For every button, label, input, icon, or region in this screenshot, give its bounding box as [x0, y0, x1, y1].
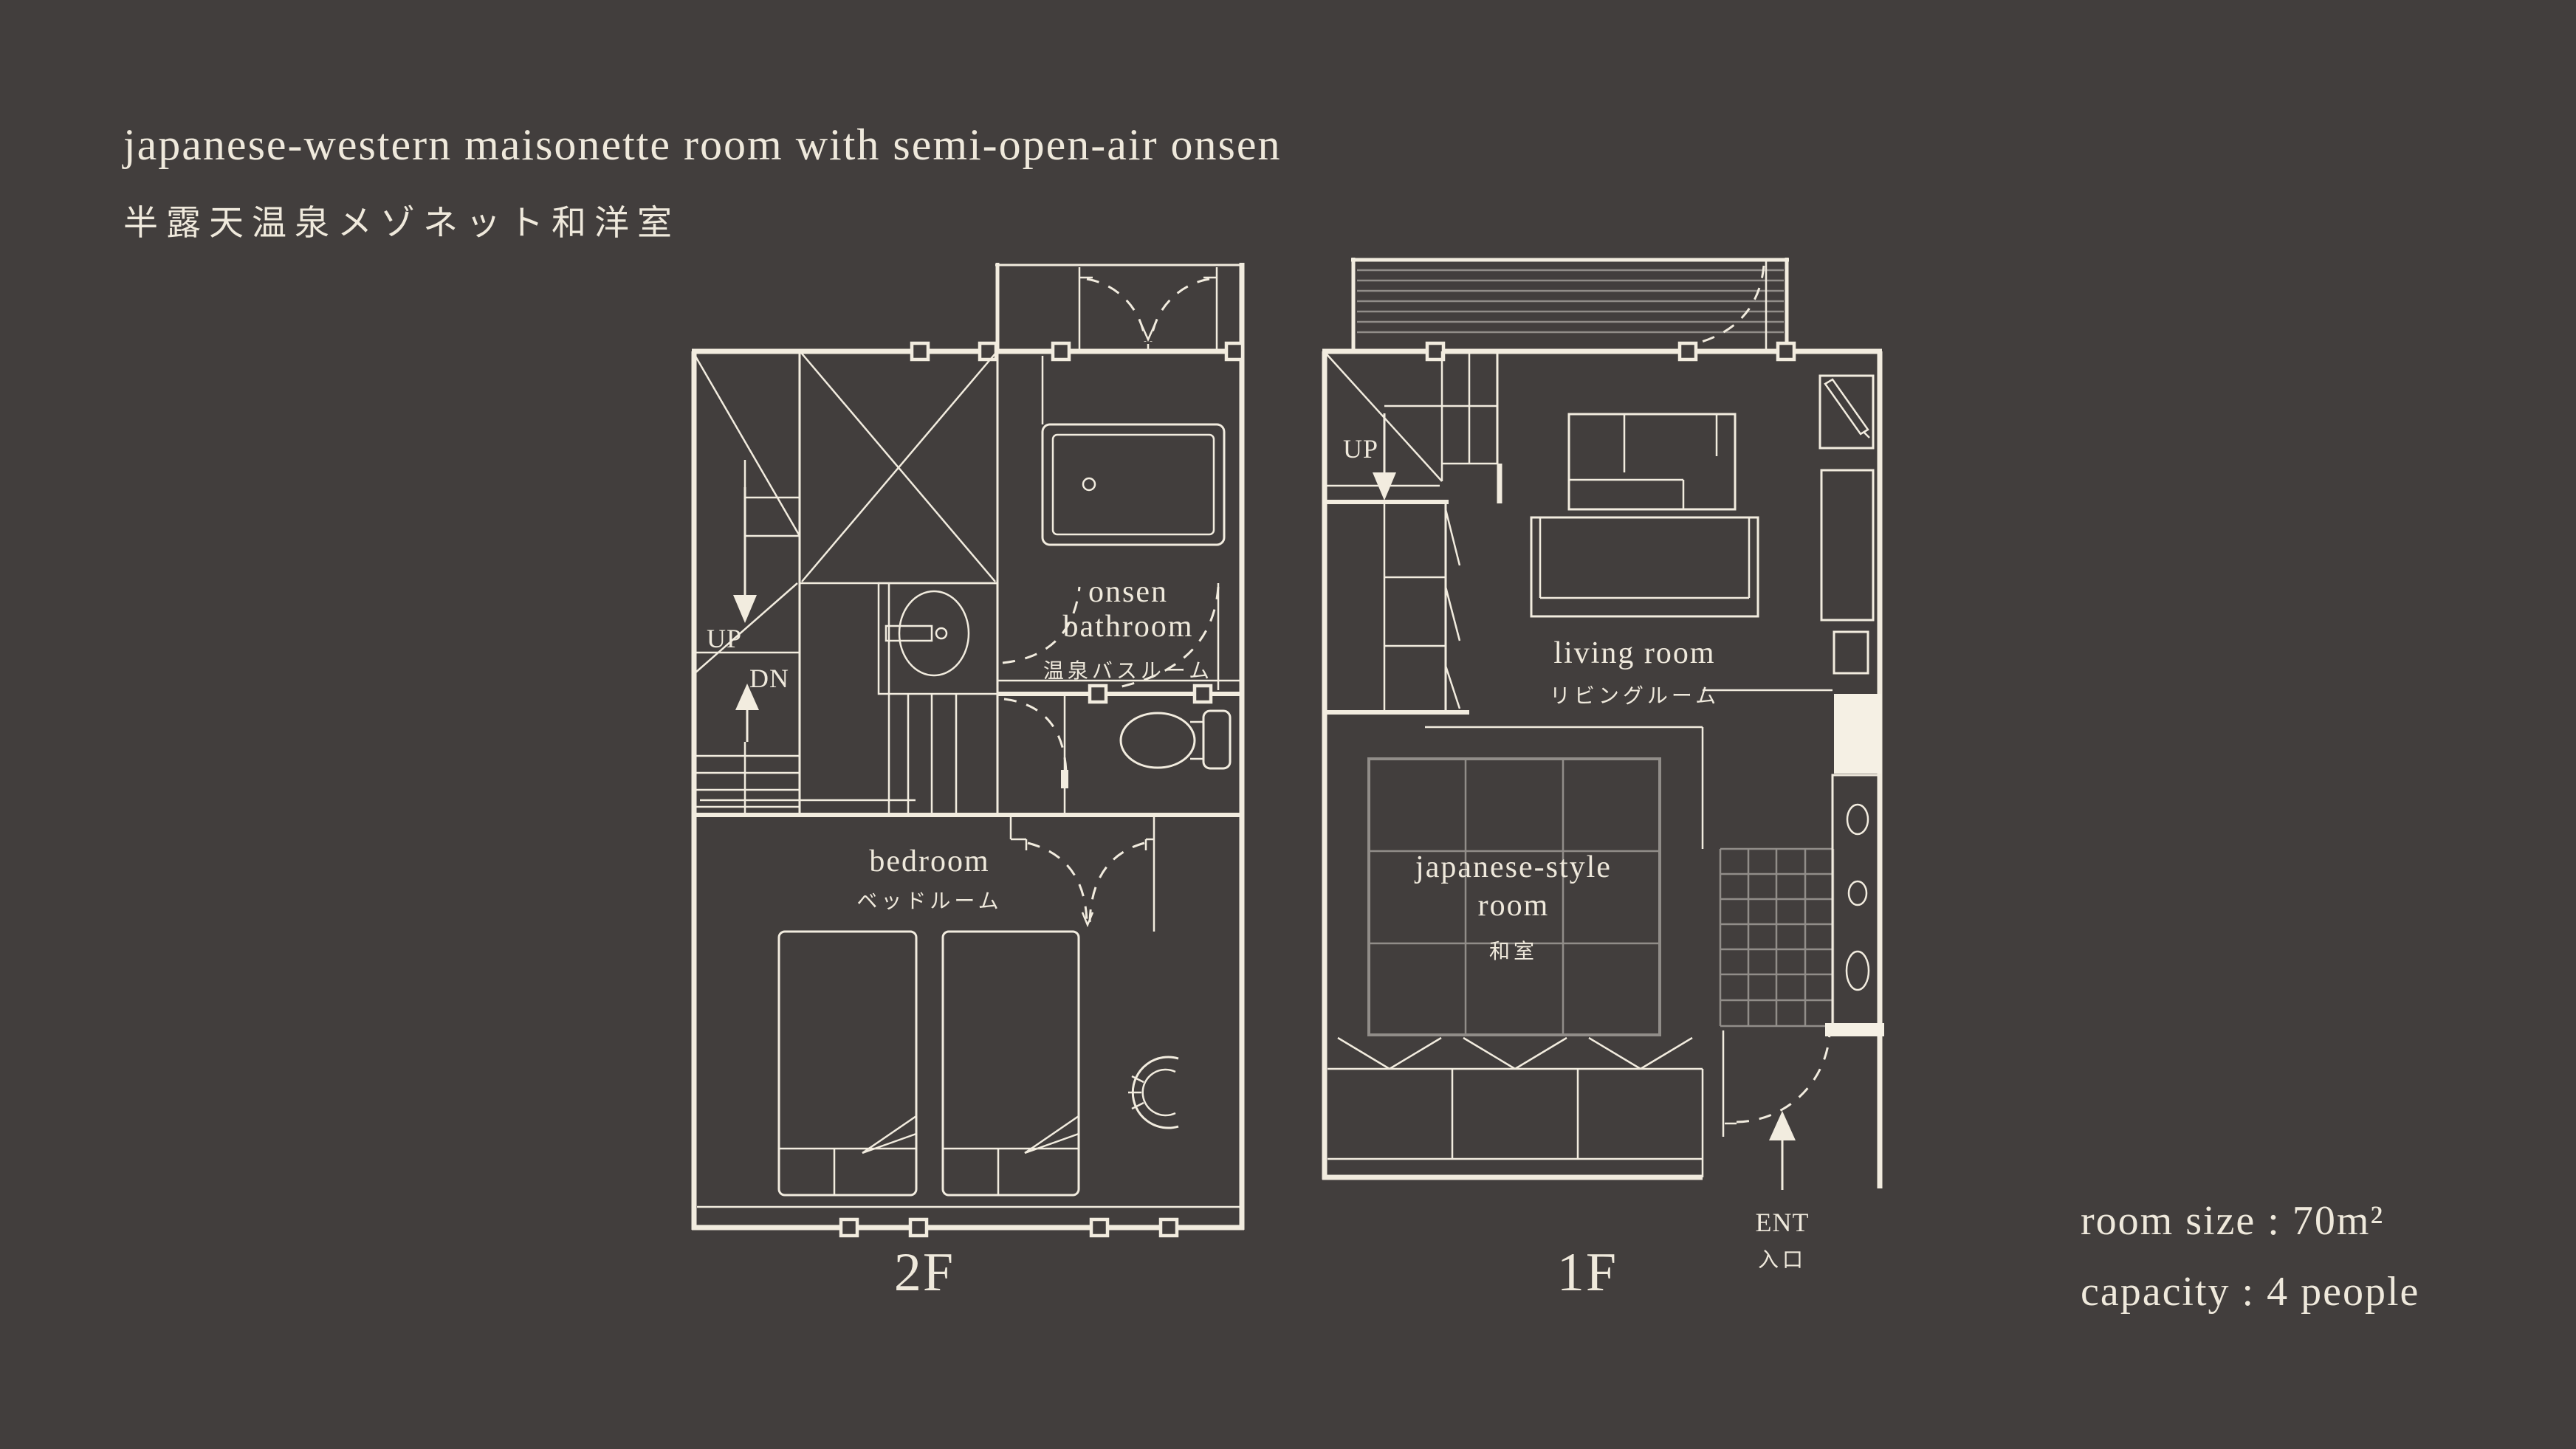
- staircase-2f: UP DN: [694, 351, 800, 815]
- window-marker: [980, 343, 996, 359]
- floor-plan-2f: UP DN: [692, 263, 1244, 1303]
- down-arrow-icon: [733, 595, 757, 623]
- outer-walls-1f: [1322, 351, 1882, 1188]
- toilet-room: [1065, 694, 1230, 815]
- bed-1: [779, 932, 916, 1195]
- japanese-room-label-line2: room: [1478, 889, 1550, 923]
- window-marker: [1161, 1219, 1177, 1236]
- door-swing-arc: [1680, 266, 1764, 347]
- genkan-tiles: [1720, 849, 1833, 1026]
- door-swing-arc: [1028, 843, 1087, 923]
- cabinet-handle: [1849, 881, 1866, 905]
- toilet-tank: [1203, 711, 1230, 768]
- tv-stand: [1820, 376, 1873, 448]
- window-marker: [1090, 686, 1106, 702]
- entrance-area: ENT 入口: [1703, 690, 1884, 1272]
- entrance-label-jp: 入口: [1758, 1249, 1807, 1272]
- door-swing-arc: [1087, 279, 1145, 342]
- deck-1f: [1351, 258, 1789, 351]
- window-marker: [1680, 343, 1696, 359]
- entry-door-jamb: [1825, 1023, 1884, 1036]
- door-swing-arc: [1151, 279, 1209, 342]
- armchair: [1128, 1057, 1178, 1128]
- bathtub: [1043, 424, 1224, 545]
- low-table: [1569, 414, 1735, 509]
- toilet: [1121, 713, 1195, 768]
- floorplan-canvas: japanese-western maisonette room with se…: [0, 0, 2576, 1449]
- living-room-label-en: living room: [1553, 636, 1715, 670]
- window-marker: [1091, 1219, 1107, 1236]
- japanese-room-label-line1: japanese-style: [1414, 850, 1612, 884]
- entry-door-swing-arc: [1737, 1033, 1830, 1122]
- outer-walls-2f: [692, 263, 1244, 1230]
- page-title-en: japanese-western maisonette room with se…: [122, 120, 1282, 169]
- stairs-up-label-1f: UP: [1343, 434, 1378, 464]
- onsen-bathroom-label-line1: onsen: [1088, 575, 1168, 609]
- door-swing-arc: [1090, 843, 1144, 923]
- window-marker: [1195, 686, 1211, 702]
- onsen-bathroom-label-jp: 温泉バスルーム: [1043, 659, 1213, 683]
- onsen-bathroom: onsen bathroom 温泉バスルーム: [997, 356, 1242, 702]
- storage-closet-1f: [1322, 502, 1469, 712]
- staircase-1f: UP: [1322, 351, 1500, 503]
- bedroom-label-en: bedroom: [869, 844, 989, 878]
- living-room: living room リビングルーム: [1531, 376, 1873, 708]
- page-title-jp: 半露天温泉メゾネット和洋室: [123, 204, 680, 243]
- stairs-up-label-2f: UP: [707, 624, 742, 653]
- living-room-label-jp: リビングルーム: [1550, 684, 1720, 708]
- floor-label-2f: 2F: [894, 1242, 955, 1303]
- deck-planks: [1357, 270, 1784, 332]
- japanese-room-label-jp: 和室: [1489, 940, 1538, 963]
- japanese-style-room: japanese-style room 和室: [1369, 759, 1660, 1035]
- window-marker: [1226, 343, 1243, 359]
- cabinet: [1821, 470, 1873, 620]
- floor-plan-1f: UP: [1322, 258, 1884, 1303]
- bedroom-label-jp: ベッドルーム: [856, 890, 1002, 913]
- cabinet-small: [1834, 632, 1868, 673]
- window-marker: [1427, 343, 1443, 359]
- sofa: [1531, 517, 1758, 616]
- entrance-label-en: ENT: [1756, 1208, 1810, 1237]
- capacity-text: capacity : 4 people: [2081, 1269, 2419, 1315]
- window-marker: [1053, 343, 1069, 359]
- floor-label-1f: 1F: [1557, 1242, 1618, 1303]
- entry-accent-panel: [1834, 694, 1881, 774]
- stairs-down-label-2f: DN: [749, 664, 789, 693]
- onsen-bathroom-label-line2: bathroom: [1063, 610, 1194, 644]
- futon-closet-row: [1328, 1038, 1703, 1177]
- window-marker: [910, 1219, 927, 1236]
- bed-2: [943, 932, 1079, 1195]
- shoe-cabinet: [1833, 775, 1881, 1026]
- window-marker: [912, 343, 928, 359]
- window-marker: [841, 1219, 857, 1236]
- tv: [1825, 379, 1868, 434]
- room-size-text: room size : 70m²: [2081, 1198, 2384, 1244]
- room-info: room size : 70m² capacity : 4 people: [2081, 1198, 2419, 1315]
- entrance-arrow-icon: [1769, 1111, 1796, 1140]
- door-swing-arc: [1003, 587, 1079, 663]
- cabinet-handle: [1847, 805, 1868, 834]
- window-marker: [1778, 343, 1794, 359]
- balcony-2f: [1079, 267, 1217, 351]
- floorplan-page: japanese-western maisonette room with se…: [0, 0, 2576, 1449]
- door-swing-arc: [1004, 699, 1066, 772]
- washbasin: [879, 583, 997, 815]
- bedroom-2f: bedroom ベッドルーム: [694, 800, 1242, 1195]
- cabinet-handle: [1847, 951, 1869, 990]
- bathtub-drain: [1083, 478, 1095, 490]
